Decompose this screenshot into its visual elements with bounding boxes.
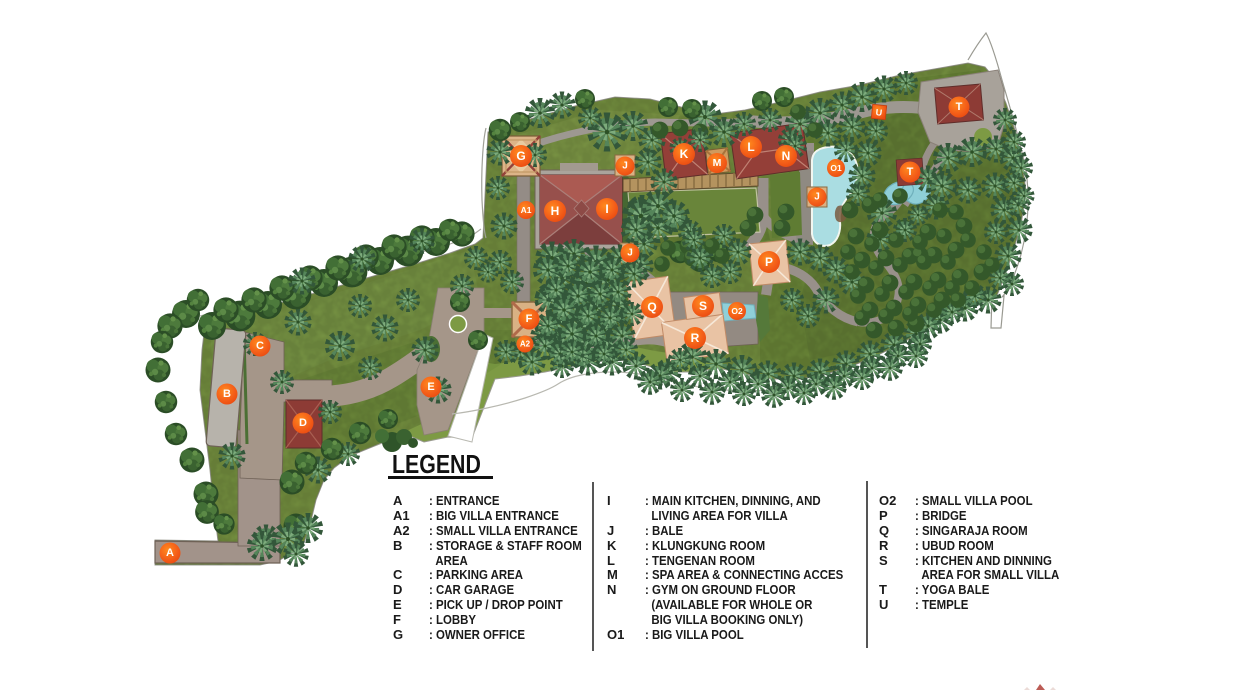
svg-text:M: M [713,157,722,169]
svg-text:G: G [516,149,525,163]
svg-text:A2: A2 [520,340,531,349]
svg-text:J: J [622,161,628,172]
svg-text:E: E [427,381,434,393]
svg-text:L: L [747,140,754,154]
svg-text:I: I [605,202,608,216]
svg-text:A1: A1 [521,205,532,215]
svg-text:U: U [875,107,883,118]
svg-text:D: D [299,417,307,429]
svg-text:O2: O2 [731,306,743,316]
svg-text:O1: O1 [830,163,842,173]
svg-text:S: S [699,299,707,313]
svg-text:P: P [765,255,773,269]
svg-text:A: A [166,547,174,559]
svg-text:J: J [814,192,820,203]
svg-text:C: C [256,340,264,352]
svg-text:N: N [782,149,791,163]
svg-text:H: H [551,204,560,218]
svg-text:B: B [223,388,231,400]
svg-text:K: K [680,147,689,161]
svg-text:Q: Q [647,300,656,314]
svg-text:T: T [907,166,914,178]
svg-text:F: F [526,313,533,325]
svg-text:J: J [627,248,633,259]
svg-text:T: T [956,101,963,113]
svg-text:R: R [691,331,700,345]
